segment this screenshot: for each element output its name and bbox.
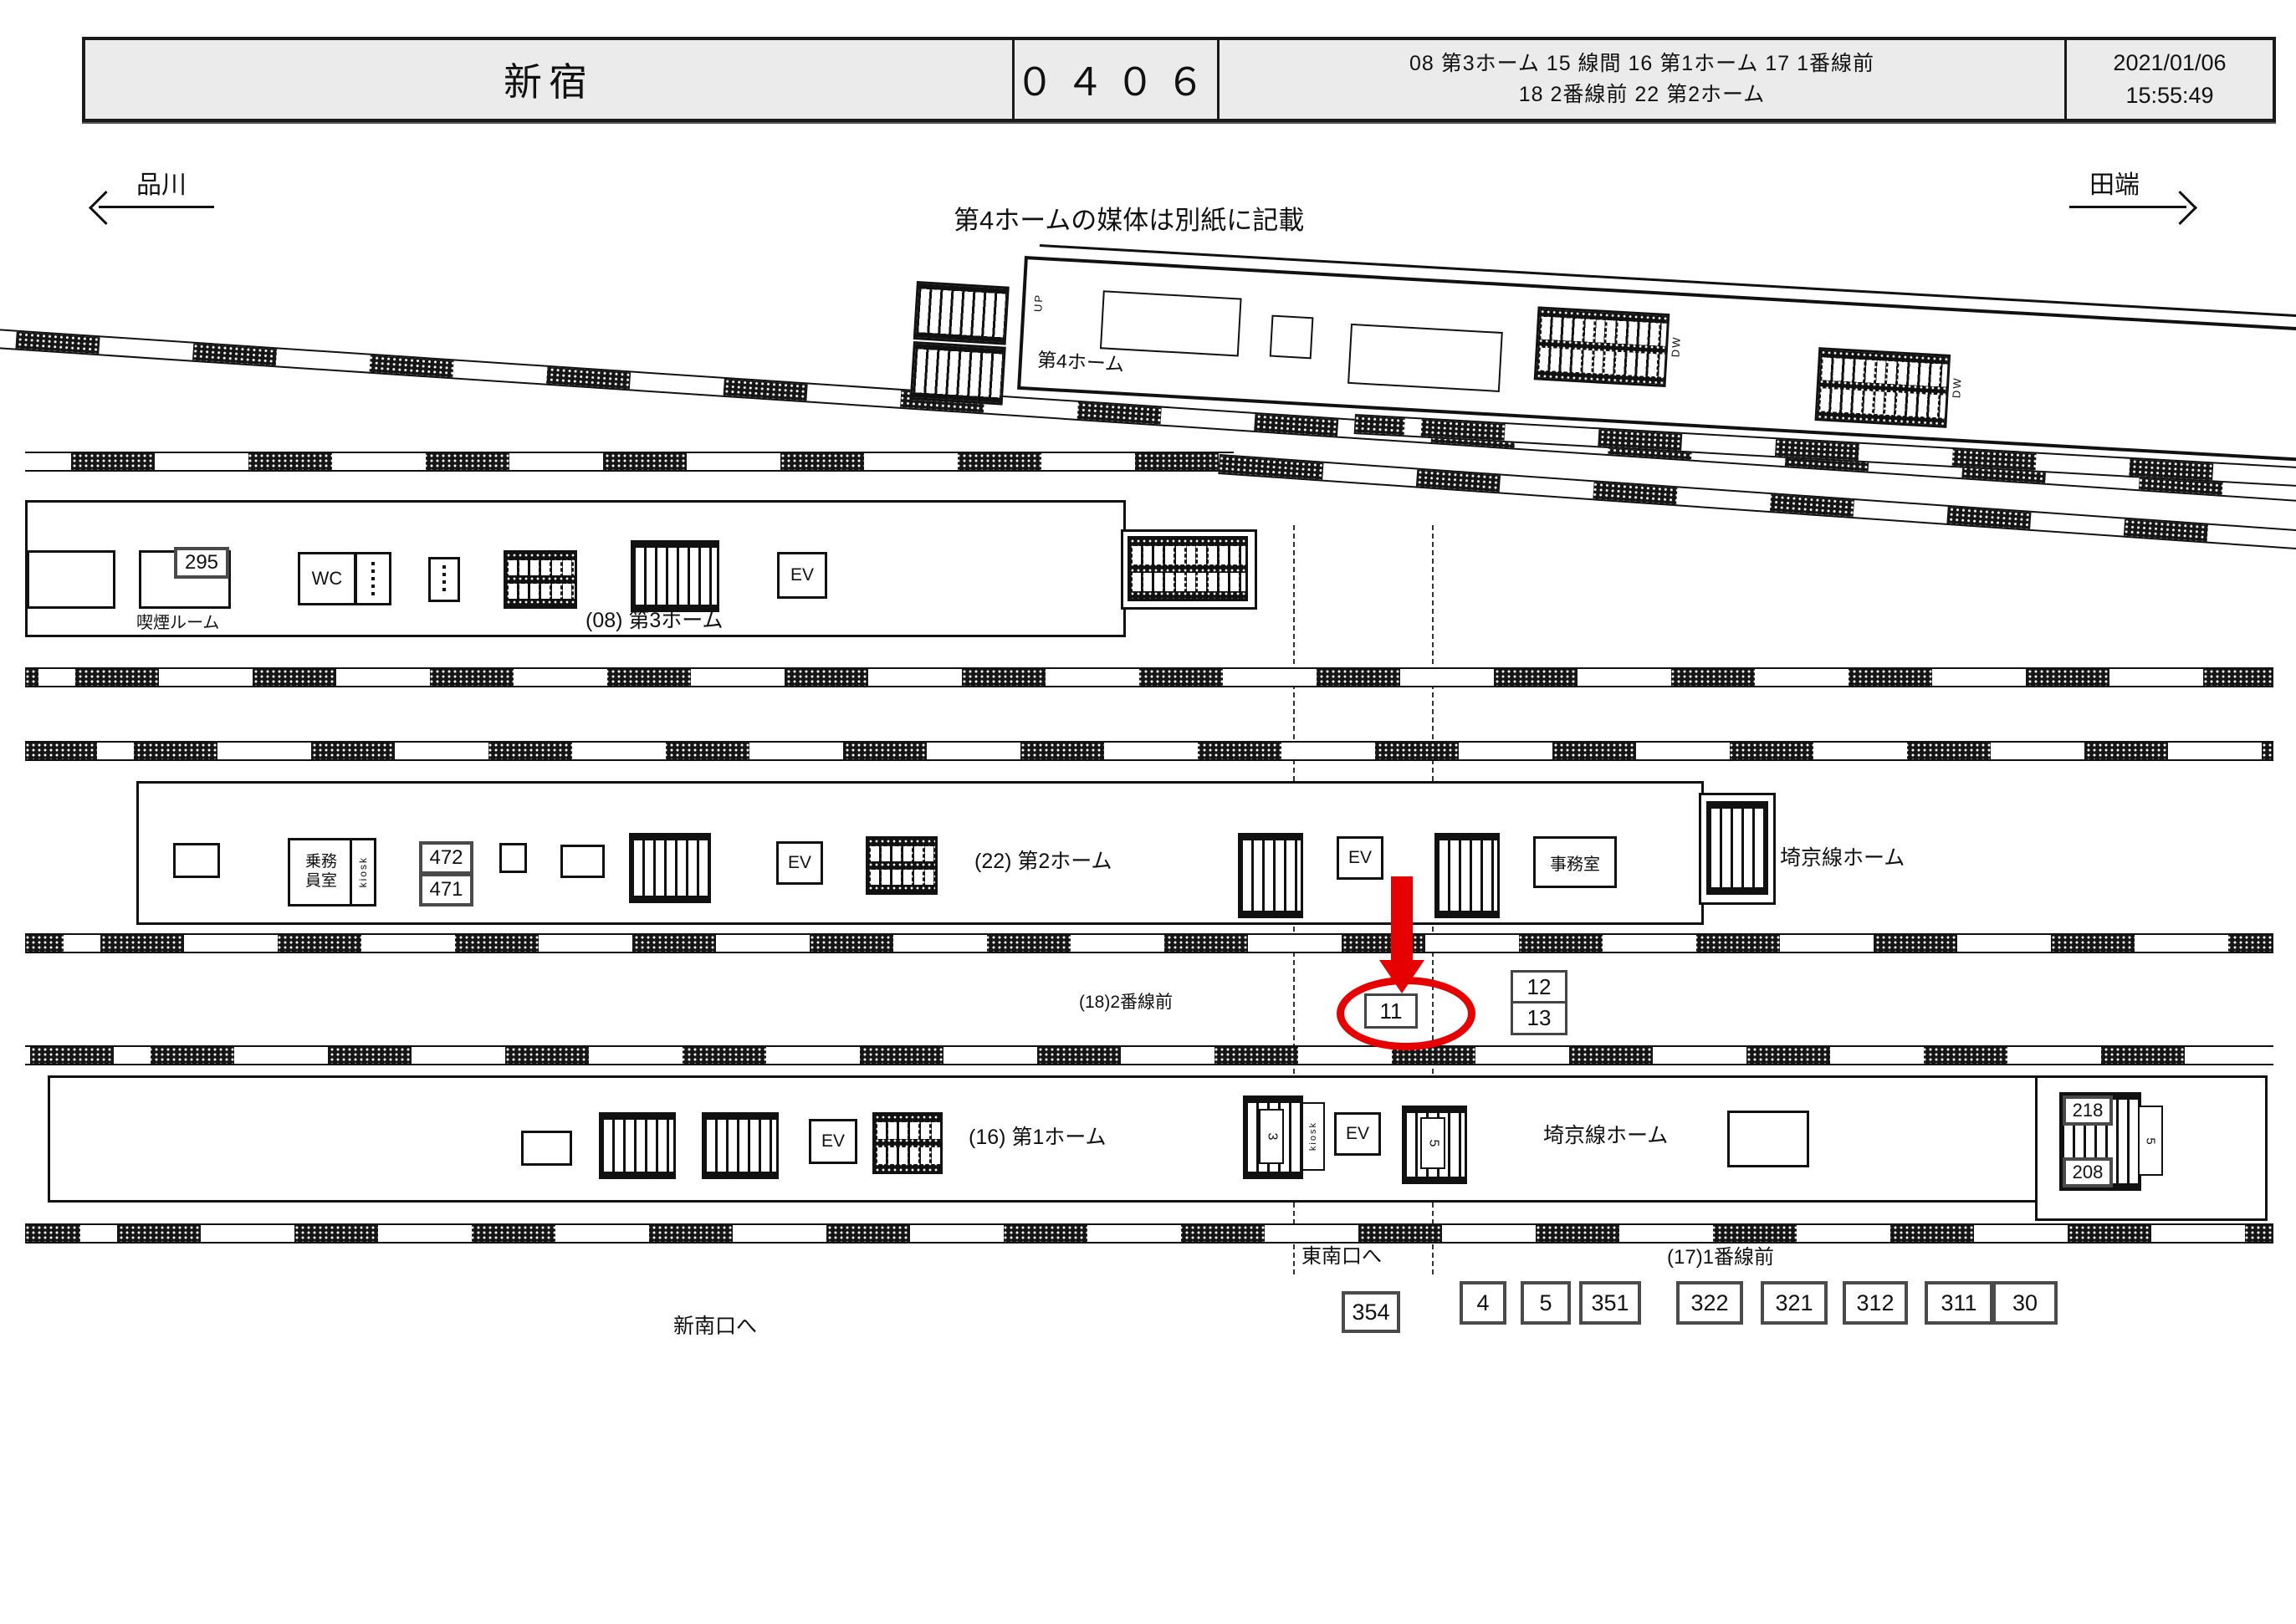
- platform2-room-3: [560, 845, 605, 878]
- small-sign-box-1: [355, 552, 391, 605]
- media-badge-4: 4: [1460, 1281, 1506, 1325]
- stair3-number: 3: [1264, 1133, 1279, 1141]
- smoking-room-label: 喫煙ルーム: [136, 609, 219, 633]
- media-badge-351: 351: [1579, 1281, 1641, 1325]
- platform2-room-1: [173, 843, 220, 878]
- platform3-escalator-icon: [504, 550, 577, 609]
- media-badge-321: 321: [1761, 1281, 1828, 1325]
- platform4-note: 第4ホームの媒体は別紙に記載: [954, 199, 1304, 237]
- platform1-label: (16) 第1ホーム: [969, 1121, 1107, 1151]
- media-badge-472: 472: [419, 841, 473, 875]
- platform3-stairs-icon: [631, 540, 719, 612]
- platform2-ev-2-box: EV: [1337, 836, 1383, 880]
- platform4-label: 第4ホーム: [1036, 344, 1125, 377]
- platform4-escalator-1-icon: [1534, 306, 1670, 387]
- kiosk-label: kiosk: [357, 856, 369, 887]
- small-sign-box-2: [428, 557, 460, 602]
- media-badge-11: 11: [1364, 993, 1418, 1029]
- platform1-end-number-box: 5: [2138, 1106, 2163, 1176]
- platform3-notch-escalator-icon: [1128, 536, 1248, 601]
- crew-room-box: 乗務 員室: [288, 838, 355, 906]
- platform1-stair5-number-box: 5: [1420, 1117, 1445, 1169]
- platform2-ev-1-box: EV: [776, 841, 823, 885]
- kiosk-label-2: kiosk: [1308, 1121, 1318, 1151]
- stair5-number: 5: [1425, 1140, 1440, 1147]
- media-badge-30: 30: [1992, 1281, 2058, 1325]
- shinnan-exit-label: 新南口へ: [673, 1310, 757, 1340]
- track-h5: [25, 1223, 2273, 1244]
- platform4-room-1: [1100, 290, 1242, 356]
- datetime: 2021/01/06 15:55:49: [2067, 40, 2273, 119]
- highlight-arrow-bar: [1391, 876, 1413, 962]
- station-name: 新宿: [85, 40, 1015, 119]
- track-horizontal-upper: [25, 452, 1234, 472]
- platform1-saikyo-label: 埼京線ホーム: [1543, 1119, 1668, 1149]
- media-badge-322: 322: [1676, 1281, 1743, 1325]
- platform4-escalator-2-icon: [1814, 347, 1951, 428]
- media-badge-312: 312: [1843, 1281, 1908, 1325]
- station-code: ０４０６: [1015, 40, 1220, 119]
- crew-room-line2: 員室: [305, 872, 337, 891]
- platform1-escalator-icon: [872, 1112, 943, 1174]
- platform2-stairs-1-icon: [629, 833, 711, 903]
- platform4-room-3: [1347, 324, 1503, 392]
- direction-left-label: 品川: [136, 164, 187, 201]
- track-h3: [25, 933, 2273, 953]
- platform2-escalator-icon: [866, 836, 938, 895]
- crew-room-line1: 乗務: [305, 853, 337, 872]
- platform2-kiosk-box: kiosk: [350, 838, 376, 906]
- row18-label: (18)2番線前: [1079, 988, 1173, 1014]
- media-badge-471: 471: [419, 873, 473, 906]
- platform2-room-2: [499, 843, 527, 873]
- platform3-ev-box: EV: [777, 552, 827, 599]
- platform1-ev-2-box: EV: [1334, 1112, 1381, 1156]
- end-stair-number: 5: [2144, 1137, 2158, 1144]
- dw-label-1: DW: [1669, 335, 1682, 357]
- time-text: 15:55:49: [2125, 79, 2213, 112]
- platform1-stairs-1-icon: [599, 1112, 676, 1179]
- media-location-list: 08 第3ホーム 15 線間 16 第1ホーム 17 1番線前 18 2番線前 …: [1220, 40, 2067, 119]
- platform3-label: (08) 第3ホーム: [586, 604, 724, 634]
- platform2-saikyo-label: 埼京線ホーム: [1780, 841, 1905, 871]
- dw-label-2: DW: [1950, 376, 1963, 398]
- line17-label: (17)1番線前: [1667, 1240, 1774, 1269]
- platform2-stairs-3-icon: [1434, 833, 1500, 918]
- date-text: 2021/01/06: [2113, 47, 2226, 79]
- platform1-ev-1-box: EV: [809, 1119, 857, 1164]
- platform3-room: [27, 550, 115, 609]
- platform1-kiosk-box: kiosk: [1301, 1102, 1325, 1171]
- station-media-diagram: 新宿 ０４０６ 08 第3ホーム 15 線間 16 第1ホーム 17 1番線前 …: [0, 0, 2296, 1624]
- platform4-room-2: [1270, 315, 1314, 360]
- media-badge-354: 354: [1342, 1291, 1400, 1333]
- platform1-stair3-number-box: 3: [1259, 1109, 1284, 1164]
- right-arrow-icon: [2163, 191, 2197, 225]
- media-badge-12: 12: [1511, 970, 1567, 1004]
- media-badge-208: 208: [2063, 1157, 2113, 1187]
- platform2-extension-stairs-icon: [1706, 801, 1768, 895]
- media-list-line2: 18 2番線前 22 第2ホーム: [1519, 79, 1766, 111]
- media-list-line1: 08 第3ホーム 15 線間 16 第1ホーム 17 1番線前: [1409, 49, 1874, 80]
- track-h1: [25, 667, 2273, 687]
- platform1-stairs-2-icon: [702, 1112, 779, 1179]
- platform4-stairs-lower-icon: [910, 341, 1006, 406]
- platform2-label: (22) 第2ホーム: [974, 845, 1112, 875]
- office-box: 事務室: [1533, 836, 1617, 888]
- media-badge-311: 311: [1925, 1281, 1993, 1325]
- media-badge-13: 13: [1511, 1001, 1567, 1035]
- track-h2: [25, 741, 2273, 761]
- header-bar: 新宿 ０４０６ 08 第3ホーム 15 線間 16 第1ホーム 17 1番線前 …: [82, 37, 2276, 122]
- tonan-exit-label: 東南口へ: [1301, 1239, 1382, 1269]
- left-arrow-icon: [89, 191, 123, 225]
- media-badge-295: 295: [174, 547, 229, 579]
- platform1-room-2: [1727, 1111, 1809, 1167]
- media-badge-218: 218: [2063, 1095, 2113, 1126]
- media-badge-5: 5: [1521, 1281, 1571, 1325]
- platform2-stairs-2-icon: [1238, 833, 1303, 918]
- platform1-room-1: [521, 1131, 572, 1166]
- wc-box: WC: [298, 552, 356, 605]
- track-h4: [25, 1045, 2273, 1065]
- up-label: UP: [1031, 294, 1045, 313]
- platform4-stairs-upper-icon: [913, 281, 1010, 345]
- direction-right-label: 田端: [2089, 164, 2140, 201]
